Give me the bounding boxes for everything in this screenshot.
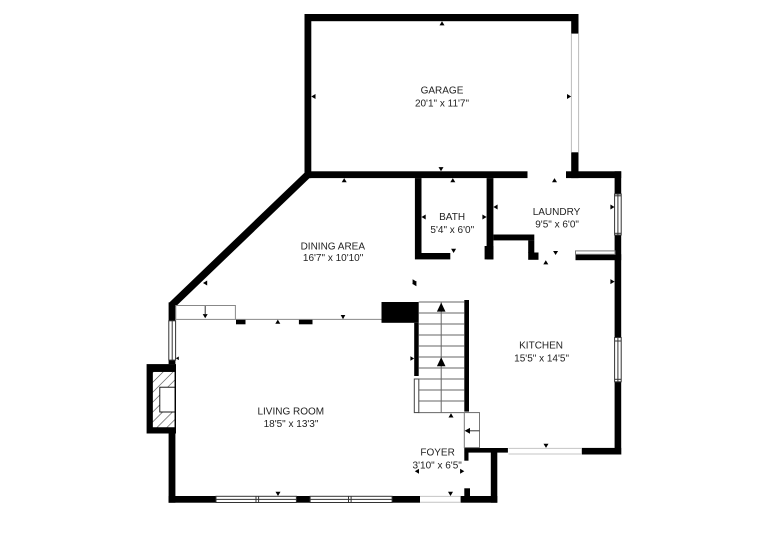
svg-text:KITCHEN: KITCHEN: [519, 341, 563, 352]
svg-text:5'4" x 6'0": 5'4" x 6'0": [430, 225, 474, 236]
svg-text:9'5" x 6'0": 9'5" x 6'0": [535, 220, 579, 231]
svg-text:FOYER: FOYER: [420, 447, 454, 458]
svg-text:DINING AREA: DINING AREA: [301, 241, 366, 252]
svg-text:20'1" x 11'7": 20'1" x 11'7": [415, 99, 470, 110]
svg-text:15'5" x 14'5": 15'5" x 14'5": [514, 354, 569, 365]
svg-text:LIVING ROOM: LIVING ROOM: [257, 407, 324, 418]
svg-text:LAUNDRY: LAUNDRY: [533, 207, 581, 218]
svg-text:18'5" x 13'3": 18'5" x 13'3": [264, 419, 319, 430]
svg-text:BATH: BATH: [439, 212, 465, 223]
svg-text:GARAGE: GARAGE: [421, 86, 464, 97]
svg-text:16'7" x 10'10": 16'7" x 10'10": [303, 253, 364, 264]
svg-text:3'10" x 6'5": 3'10" x 6'5": [413, 461, 463, 472]
